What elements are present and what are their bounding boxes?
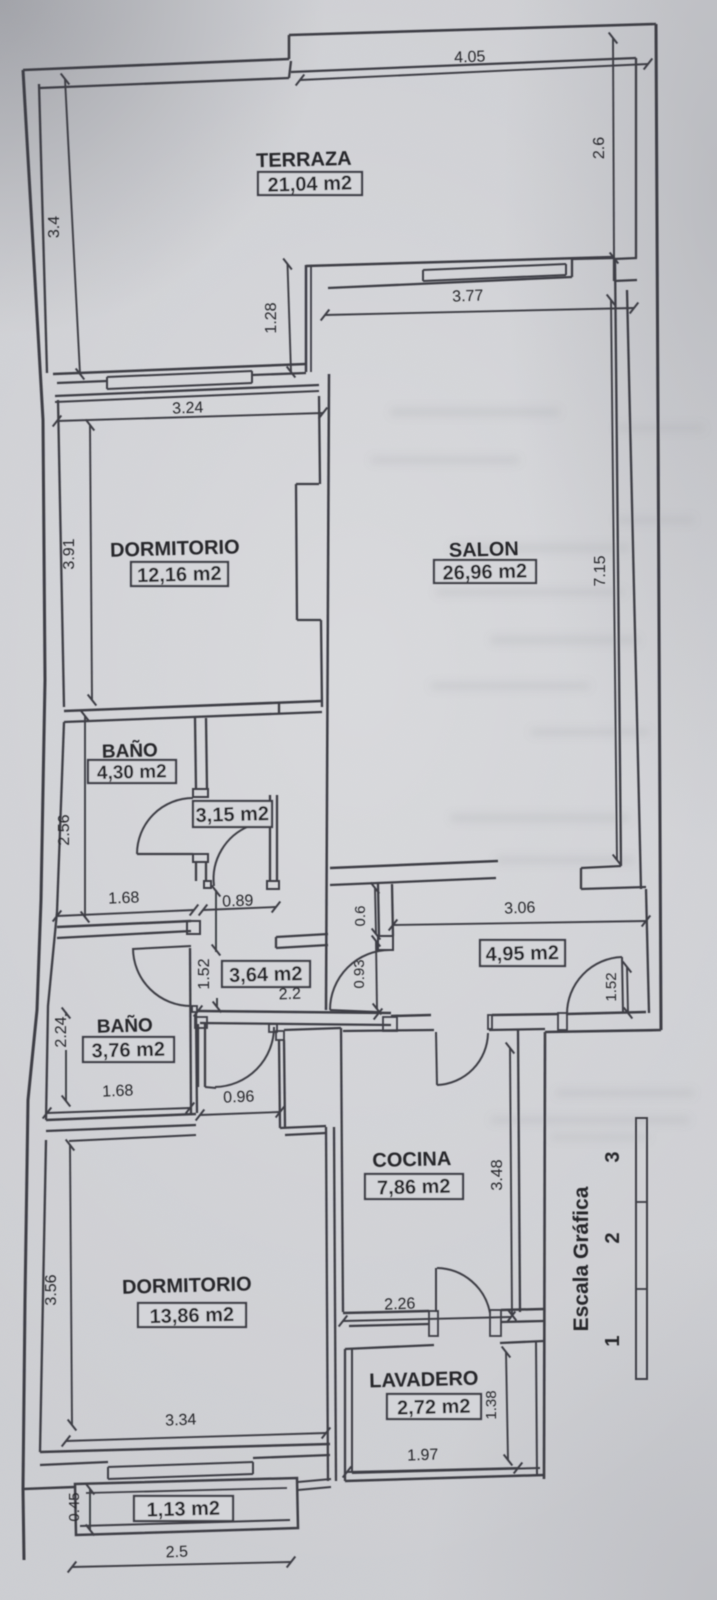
svg-text:0.89: 0.89	[222, 892, 254, 910]
svg-text:3,64 m2: 3,64 m2	[229, 963, 303, 987]
svg-text:0.96: 0.96	[223, 1088, 255, 1106]
svg-text:2.2: 2.2	[278, 986, 301, 1004]
svg-text:DORMITORIO: DORMITORIO	[110, 536, 240, 561]
svg-text:2.56: 2.56	[56, 814, 73, 845]
svg-text:3.91: 3.91	[61, 538, 78, 569]
svg-text:26,96 m2: 26,96 m2	[442, 560, 527, 584]
svg-text:BAÑO: BAÑO	[97, 1014, 154, 1037]
svg-text:4,95 m2: 4,95 m2	[485, 942, 559, 966]
svg-text:13,86 m2: 13,86 m2	[149, 1304, 234, 1328]
svg-text:3.06: 3.06	[504, 899, 536, 917]
svg-text:1.68: 1.68	[108, 889, 140, 907]
svg-text:1.28: 1.28	[263, 302, 280, 333]
svg-text:3.34: 3.34	[165, 1411, 197, 1429]
svg-text:1.52: 1.52	[196, 958, 213, 989]
svg-text:COCINA: COCINA	[372, 1148, 451, 1172]
svg-text:3.24: 3.24	[172, 399, 204, 417]
svg-text:3.48: 3.48	[489, 1159, 506, 1190]
svg-text:12,16 m2: 12,16 m2	[137, 563, 222, 587]
svg-text:TERRAZA: TERRAZA	[256, 148, 352, 172]
svg-text:2.6: 2.6	[591, 137, 608, 159]
svg-text:Escala Gráfica: Escala Gráfica	[570, 1186, 593, 1331]
svg-text:1.38: 1.38	[483, 1390, 500, 1419]
svg-text:3.77: 3.77	[452, 287, 484, 305]
svg-text:SALON: SALON	[449, 538, 520, 562]
svg-text:0.93: 0.93	[351, 959, 368, 988]
svg-text:2.5: 2.5	[165, 1544, 188, 1562]
svg-text:3,76 m2: 3,76 m2	[91, 1039, 165, 1063]
svg-text:0.45: 0.45	[66, 1492, 83, 1521]
svg-text:1,13 m2: 1,13 m2	[146, 1498, 220, 1522]
svg-text:7,86 m2: 7,86 m2	[377, 1176, 451, 1200]
svg-text:LAVADERO: LAVADERO	[369, 1368, 479, 1393]
svg-text:4.05: 4.05	[454, 48, 486, 66]
svg-text:3: 3	[602, 1151, 624, 1162]
svg-text:1.97: 1.97	[407, 1446, 439, 1464]
svg-text:1.68: 1.68	[102, 1082, 134, 1100]
svg-text:1: 1	[602, 1335, 624, 1346]
svg-text:0.6: 0.6	[352, 906, 369, 927]
svg-text:2: 2	[602, 1232, 624, 1243]
svg-text:3.4: 3.4	[46, 216, 63, 238]
svg-text:DORMITORIO: DORMITORIO	[122, 1273, 252, 1298]
svg-text:2,72 m2: 2,72 m2	[397, 1396, 471, 1420]
svg-text:2.24: 2.24	[53, 1016, 70, 1047]
svg-text:7.15: 7.15	[592, 555, 609, 586]
svg-text:3.56: 3.56	[43, 1274, 60, 1305]
svg-text:4,30 m2: 4,30 m2	[97, 761, 167, 784]
svg-text:3,15 m2: 3,15 m2	[195, 803, 269, 827]
svg-text:1.52: 1.52	[603, 972, 620, 1001]
svg-text:21,04 m2: 21,04 m2	[267, 172, 352, 196]
